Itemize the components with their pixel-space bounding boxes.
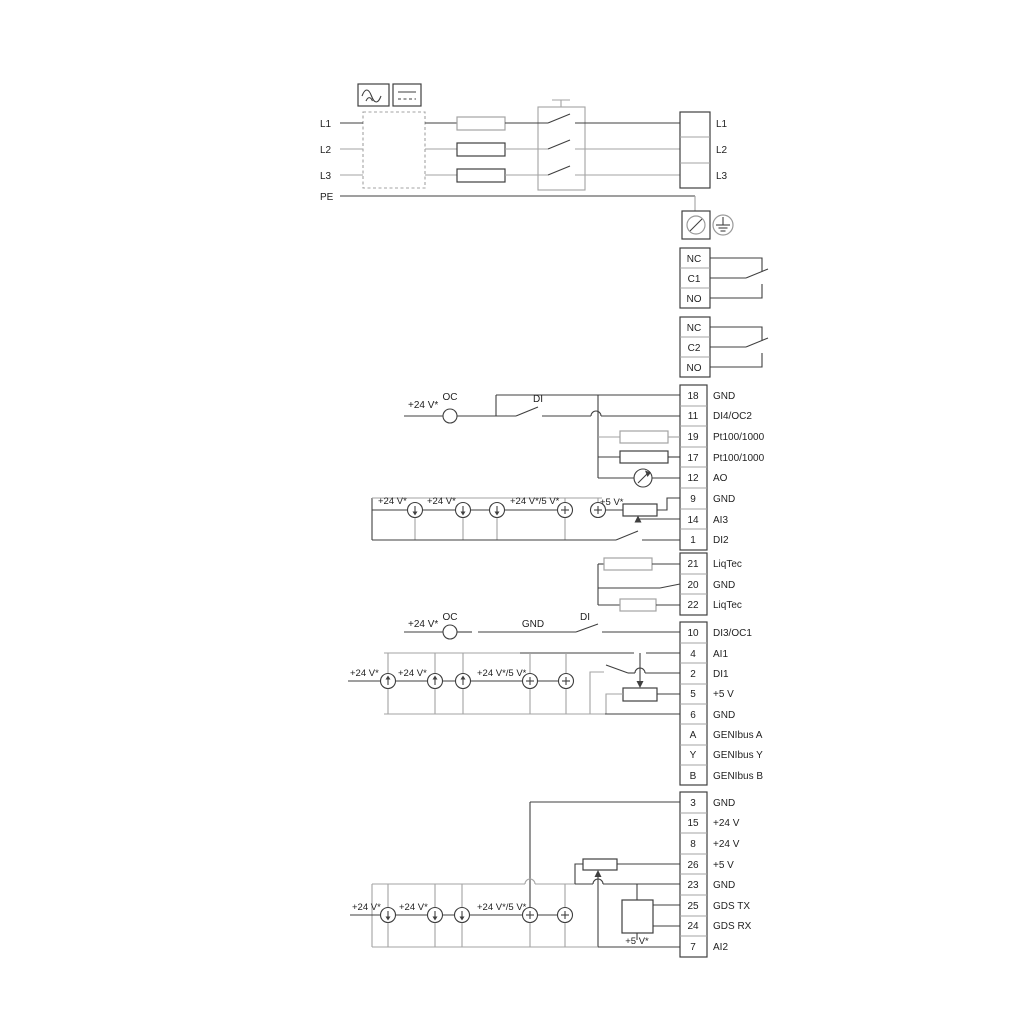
terminal-number: 20 [687,580,699,591]
terminal-label: GDS TX [713,901,750,912]
current-source-icon [381,674,396,689]
switch-icon [576,624,598,632]
wire-hop [591,411,601,416]
earth-ground-icon [713,215,733,235]
terminal-label: GND [713,798,735,809]
terminal-label: GENIbus A [713,730,763,741]
current-source-icon [456,674,471,689]
ai2-gds-section: +5 V* +24 V* +24 V* +24 V*/5 V* [350,802,680,947]
terminal-label: GND [713,880,735,891]
terminal-label: LiqTec [713,600,742,611]
switch-icon [616,531,638,540]
terminal-label: L2 [716,145,728,156]
di4-oc2-wiring: +24 V* OC DI [404,392,680,423]
terminal-label: L1 [716,119,728,130]
relay-contact-icon [710,327,768,367]
terminal-number: 18 [687,391,699,402]
potentiometer-icon [583,859,617,870]
terminal-label: AI1 [713,649,728,660]
terminal-label: NO [687,294,702,305]
terminal-number: 6 [690,710,696,721]
potentiometer-icon [623,504,657,516]
l2-wire [340,140,680,156]
current-source-icon [490,503,505,518]
terminal-label: GND [713,494,735,505]
terminal-label: Pt100/1000 [713,432,765,443]
terminal-number: 1 [690,535,696,546]
voltage-source-icon [558,908,573,923]
wiper-arrow-icon [637,681,644,688]
relay-contact-icon [710,258,768,298]
open-collector-icon [443,409,457,423]
supply-label: +24 V* [398,668,427,679]
liqtec-wiring [598,558,680,611]
meter-icon [634,469,652,487]
terminal-number: 3 [690,798,696,809]
l1-wire [340,114,680,130]
terminal-number: 2 [690,669,696,680]
switch-icon [516,407,538,416]
voltage-source-icon [558,503,573,518]
supply-label: +24 V*/5 V* [510,496,560,507]
supply-label: +24 V* [350,668,379,679]
terminal-label: NC [687,254,701,265]
wiper-arrow-icon [595,870,602,877]
terminal-strip-a: 18 GND 11 DI4/OC2 19 Pt100/1000 17 Pt100… [680,385,765,550]
terminal-label: C2 [688,343,701,354]
terminal-number: 4 [690,649,696,660]
terminal-number: 25 [687,901,699,912]
terminal-number: 21 [687,559,699,570]
terminal-label: DI1 [713,669,729,680]
terminal-number: 15 [687,818,699,829]
relay2-block: NC C2 NO [680,317,768,377]
input-line-label-pe: PE [320,192,334,203]
potentiometer-icon [623,688,657,701]
pt100-ao-wiring [598,395,680,487]
terminal-label: +24 V [713,818,740,829]
terminal-label: DI4/OC2 [713,411,752,422]
current-source-icon [428,908,443,923]
relay1-block: NC C1 NO [680,248,768,308]
supply-label: +24 V* [399,902,428,913]
input-line-label-l1: L1 [320,119,332,130]
terminal-number: 10 [687,628,699,639]
pe-wire [340,196,695,211]
digital-input-label: DI [580,612,590,623]
terminal-number: 8 [690,839,696,850]
ai1-di1-section: +24 V* +24 V* +24 V*/5 V* [348,653,680,714]
terminal-label: L3 [716,171,728,182]
terminal-label: NO [687,363,702,374]
terminal-label: GND [713,391,735,402]
terminal-strip-b: 21 LiqTec 20 GND 22 LiqTec [680,553,742,615]
gds-sensor-box [622,900,653,933]
terminal-strip-c: 10 DI3/OC1 4 AI1 2 DI1 5 +5 V 6 GND A GE… [680,622,763,785]
terminal-number: 22 [687,600,699,611]
terminal-label: AO [713,473,728,484]
supply-label: +24 V* [427,496,456,507]
terminal-number: Y [690,750,697,761]
digital-input-label: DI [533,394,543,405]
terminal-label: DI3/OC1 [713,628,752,639]
di3-oc1-wiring: +24 V* OC GND DI [404,612,680,639]
open-collector-label: OC [443,612,458,623]
current-source-icon [456,503,471,518]
switch-icon [606,665,628,673]
terminal-number: 24 [687,921,699,932]
resistor-icon [620,599,656,611]
terminal-label: +24 V [713,839,740,850]
terminal-label: GND [713,580,735,591]
voltage-source-icon [523,908,538,923]
terminal-number: 23 [687,880,699,891]
terminal-number: 9 [690,494,696,505]
wiring-diagram: L1 L2 L3 PE [0,0,1024,1024]
terminal-label: GENIbus Y [713,750,763,761]
input-line-label-l2: L2 [320,145,332,156]
current-source-icon [381,908,396,923]
terminal-number: 17 [687,453,699,464]
screw-terminal-icon [682,211,710,239]
terminal-label: NC [687,323,701,334]
fuse-icon [457,169,505,182]
disconnect-switch-icon [538,100,585,190]
terminal-number: 11 [688,411,699,422]
supply-label: +24 V* [352,902,381,913]
terminal-label: C1 [688,274,701,285]
terminal-label: +5 V [713,689,734,700]
ac-symbol-icon [358,84,389,106]
voltage-source-icon [523,674,538,689]
terminal-label: AI3 [713,515,728,526]
power-input-section: L1 L2 L3 PE [320,84,733,239]
terminal-strip-d: 3 GND 15 +24 V 8 +24 V 26 +5 V 23 GND 25… [680,792,752,957]
resistor-icon [604,558,652,570]
open-collector-icon [443,625,457,639]
supply-label: +24 V*/5 V* [477,668,527,679]
fuse-icon [457,143,505,156]
terminal-label: LiqTec [713,559,742,570]
terminal-label: AI2 [713,942,728,953]
terminal-label: DI2 [713,535,729,546]
resistor-icon [620,451,668,463]
voltage-source-icon [591,503,606,518]
input-line-label-l3: L3 [320,171,332,182]
terminal-label: GENIbus B [713,771,763,782]
supply-label: +5 V* [625,936,649,947]
terminal-label: GND [713,710,735,721]
terminal-number: 14 [687,515,699,526]
terminal-number: 7 [690,942,696,953]
terminal-number: 19 [687,432,699,443]
l3-wire [340,166,680,182]
supply-label: +24 V* [378,496,407,507]
terminal-number: 12 [687,473,699,484]
dc-symbol-icon [393,84,421,106]
fuse-icon [457,117,505,130]
supply-label: +24 V*/5 V* [477,902,527,913]
current-source-icon [428,674,443,689]
supply-label: +24 V* [408,619,438,630]
terminal-number: 5 [690,689,696,700]
terminal-label: GDS RX [713,921,752,932]
resistor-icon [620,431,668,443]
voltage-source-icon [559,674,574,689]
filter-box [363,112,425,188]
terminal-number: 26 [687,860,699,871]
current-source-icon [455,908,470,923]
ai3-di2-section: +24 V* +24 V* +24 V*/5 V* +5 V* [372,496,680,540]
terminal-number: A [690,730,697,741]
terminal-label: Pt100/1000 [713,453,765,464]
open-collector-label: OC [443,392,458,403]
supply-label: +24 V* [408,400,438,411]
terminal-label: +5 V [713,860,734,871]
ground-label: GND [522,619,544,630]
mains-terminal-block: L1 L2 L3 [680,112,728,188]
terminal-number: B [690,771,697,782]
current-source-icon [408,503,423,518]
